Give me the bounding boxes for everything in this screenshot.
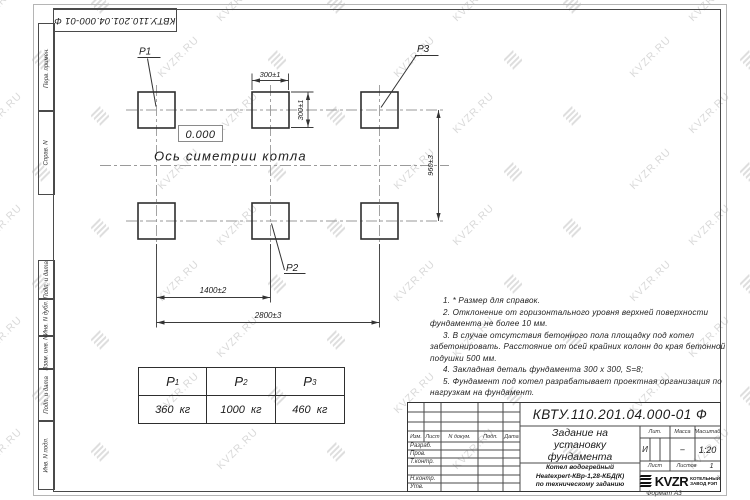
col-header-data: Дата <box>503 431 520 442</box>
col-header-ndoc: N докум. <box>441 431 478 442</box>
note-item: 3. В случае отсутствия бетонного пола пл… <box>430 330 728 365</box>
kvzr-logo-text: KVZR <box>655 474 688 489</box>
pad-label-p1: P1 <box>139 47 151 58</box>
scale-header: Масштаб <box>695 426 720 438</box>
load-table-header: P1 <box>139 368 207 396</box>
load-table-value: 460 кг <box>276 396 344 423</box>
sheets-value: 1 <box>710 463 714 470</box>
dimension-column-spacing: 1400±2 <box>157 244 271 328</box>
mass-header: Масса <box>670 426 695 438</box>
kvzr-logo-caption: КОТЕЛЬНЫЙ ЗАВОД РЭП <box>690 476 720 487</box>
lit-value: И <box>640 438 650 461</box>
technical-notes: 1. * Размер для справок. 2. Отклонение о… <box>430 295 728 399</box>
title-block-title: Задание на установку фундамента <box>520 426 640 463</box>
pad-callout-p1: P1 <box>138 47 161 107</box>
pad-label-p3: P3 <box>417 44 430 55</box>
dimension-row-spacing: 960±3 <box>426 110 441 221</box>
sheet-label: Лист <box>640 461 670 471</box>
dim-text-total-span: 2800±3 <box>254 311 282 320</box>
company-logo-cell: KVZR КОТЕЛЬНЫЙ ЗАВОД РЭП <box>640 471 720 491</box>
lit-header: Лит. <box>640 426 670 438</box>
dim-text-pad-width: 300±1 <box>260 70 281 79</box>
row-label-razrab: Разраб. <box>408 442 443 450</box>
dim-text-pad-depth: 300±1 <box>296 100 305 121</box>
row-label-utv: Утв. <box>408 483 443 491</box>
row-label-tkontr: Т.контр. <box>408 458 443 466</box>
pad-callout-p3: P3 <box>381 44 439 108</box>
row-label-prov: Пров. <box>408 450 443 458</box>
title-block: КВТУ.110.201.04.000-01 Ф Задание на уста… <box>407 402 721 492</box>
col-header-podp: Подп. <box>478 431 503 442</box>
load-table-value: 360 кг <box>139 396 207 423</box>
level-mark-value: 0.000 <box>185 129 215 141</box>
dim-text-column-spacing: 1400±2 <box>200 286 227 295</box>
format-label: Формат А3 <box>608 490 720 497</box>
row-label-empty <box>408 466 443 475</box>
load-table-header: P2 <box>207 368 275 396</box>
sheets-label: Листов <box>677 463 697 469</box>
note-item: 1. * Размер для справок. <box>430 295 728 307</box>
note-item: 2. Отклонение от горизонтального уровня … <box>430 307 728 330</box>
pad-label-p2: P2 <box>286 263 299 274</box>
dim-text-row-spacing: 960±3 <box>426 154 435 176</box>
load-table-value: 1000 кг <box>207 396 275 423</box>
title-block-doc-number: КВТУ.110.201.04.000-01 Ф <box>520 403 720 426</box>
pad-load-table: P1 P2 P3 360 кг 1000 кг 460 кг <box>138 367 345 424</box>
symmetry-axis-label: Ось симетрии котла <box>154 149 307 164</box>
note-item: 4. Закладная деталь фундамента 300 х 300… <box>430 364 728 376</box>
sheet-layer: Перв. примен. Справ. N Подп. и дата Инв.… <box>0 0 750 500</box>
row-label-nkontr: Н.контр. <box>408 475 443 483</box>
col-header-list: Лист <box>424 431 441 442</box>
col-header-izm: Изм. <box>408 431 424 442</box>
mass-value: – <box>670 438 695 461</box>
load-table-header: P3 <box>276 368 344 396</box>
note-item: 5. Фундамент под котел разрабатывает про… <box>430 376 728 399</box>
sheets-cell: Листов 1 <box>670 461 720 471</box>
scale-value: 1:20 <box>695 438 720 461</box>
title-block-subtitle: Котел водогрейный Heatexpert-КВр-1,28-КБ… <box>520 463 640 491</box>
drawing-sheet-page: KVZR.RUKVZR.RUKVZR.RUKVZR.RUKVZR.RUKVZR.… <box>0 0 750 500</box>
dimension-total-span: 2800±3 <box>157 244 380 328</box>
kvzr-logo-icon <box>640 474 653 488</box>
level-mark: 0.000 <box>179 126 223 142</box>
